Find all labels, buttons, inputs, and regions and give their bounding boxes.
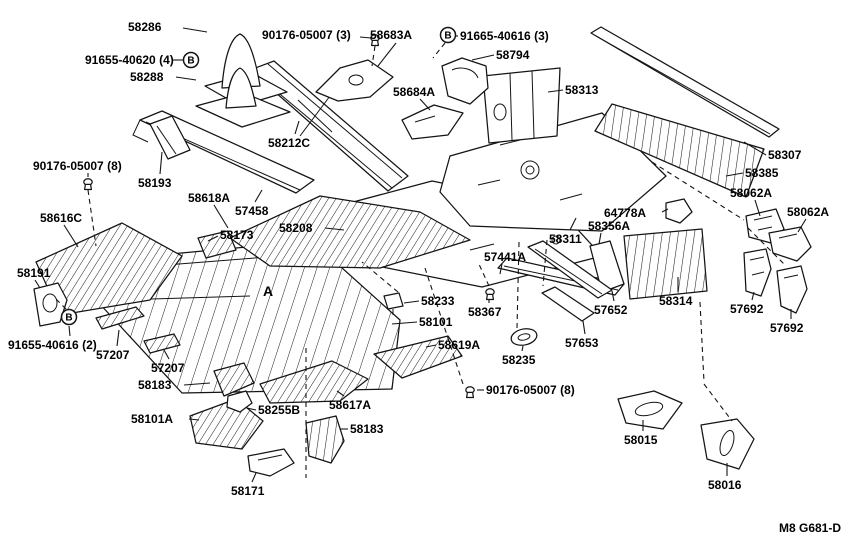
leader-line — [214, 205, 228, 228]
part-58171-shape — [248, 449, 294, 476]
part-58683A-shape — [316, 60, 393, 101]
part-58183-right-shape — [306, 416, 344, 463]
bolt-58367 — [486, 289, 494, 300]
leader-line — [599, 233, 601, 244]
parts-diagram-page: BBB 5828690176-05007 (3)58683A91665-4061… — [0, 0, 852, 560]
leader-line — [472, 55, 494, 60]
leader-line — [255, 190, 262, 202]
leader-line — [69, 326, 70, 336]
svg-text:B: B — [444, 31, 451, 42]
leader-line — [183, 28, 207, 32]
leader-line — [404, 301, 419, 303]
part-58015-shape — [618, 391, 682, 429]
leader-line — [295, 121, 299, 134]
leader-line — [160, 152, 162, 174]
leader-line — [420, 99, 430, 110]
figure-code: M8 G681-D — [779, 521, 841, 535]
part-57692-rear-shape — [777, 266, 807, 313]
part-58313-shape — [483, 68, 560, 143]
bolt-90176-05007-bottom — [466, 387, 474, 398]
svg-text:B: B — [187, 56, 194, 67]
part-57653-shape — [542, 287, 594, 321]
leader-line — [583, 321, 585, 334]
leader-line — [117, 330, 119, 346]
leader-line — [360, 37, 371, 38]
leader-line — [252, 473, 256, 482]
part-58314-shape — [624, 229, 707, 299]
fastener-letter-symbol: B — [184, 53, 199, 68]
leader-line — [35, 280, 40, 288]
part-58235-shape — [510, 326, 539, 347]
bolt-90176-05007-left — [84, 179, 92, 190]
bolt-90176-05007-top — [371, 35, 379, 46]
part-64778A-shape — [666, 199, 692, 223]
fastener-letter-symbol: B — [441, 28, 456, 43]
svg-text:B: B — [65, 313, 72, 324]
leader-line — [176, 77, 196, 80]
fastener-letter-symbol: B — [62, 310, 77, 325]
diagram-canvas: BBB — [0, 0, 852, 560]
part-58016-shape — [701, 419, 754, 469]
leader-line — [64, 225, 78, 247]
leader-line — [378, 43, 396, 66]
part-58794-shape — [442, 58, 488, 104]
leader-line — [522, 346, 523, 351]
part-58684A-shape — [402, 105, 463, 139]
part-57692-front-shape — [744, 249, 771, 296]
